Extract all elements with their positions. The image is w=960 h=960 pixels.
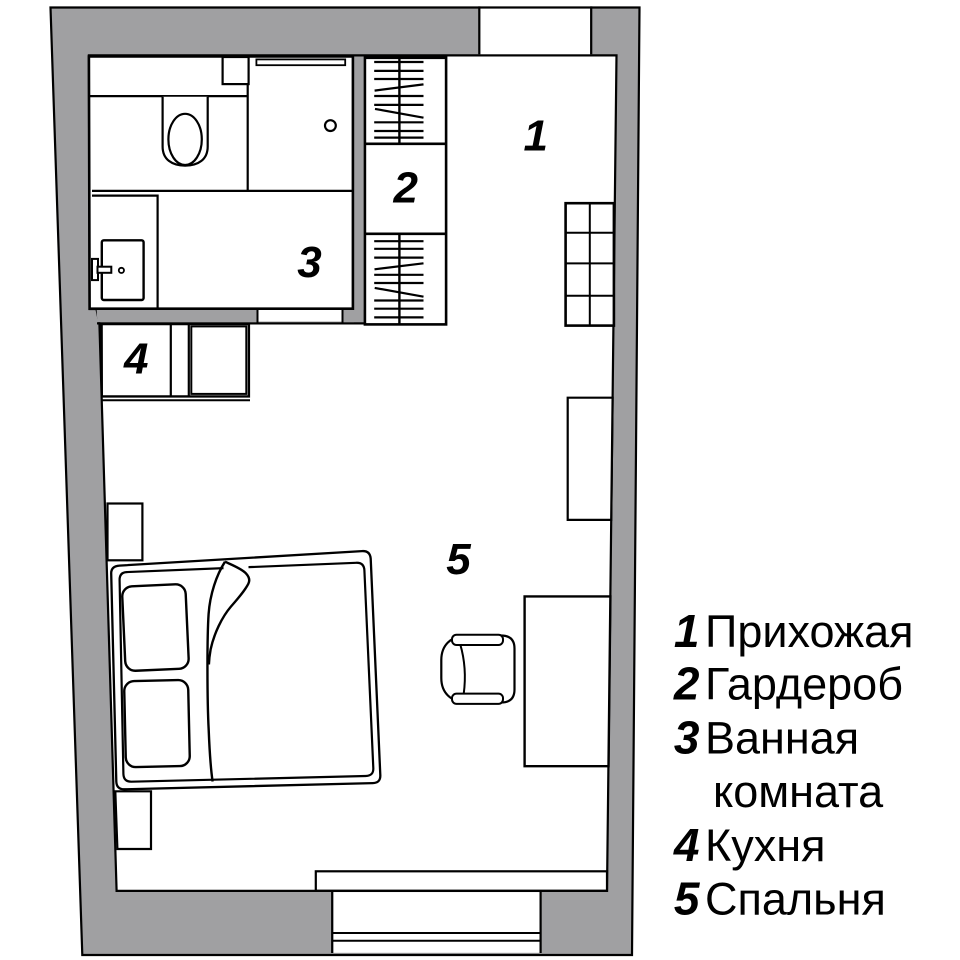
svg-text:2: 2 — [673, 658, 700, 710]
svg-text:4: 4 — [673, 819, 700, 871]
svg-text:Спальня: Спальня — [705, 874, 886, 925]
svg-text:Ванная: Ванная — [705, 713, 859, 764]
svg-text:1: 1 — [524, 112, 548, 161]
svg-text:3: 3 — [297, 238, 321, 287]
svg-text:5: 5 — [446, 535, 471, 584]
svg-text:4: 4 — [123, 335, 148, 384]
svg-text:3: 3 — [674, 712, 700, 764]
svg-text:5: 5 — [674, 873, 701, 925]
svg-text:комната: комната — [713, 766, 884, 817]
svg-text:Кухня: Кухня — [705, 820, 825, 871]
svg-text:Гардероб: Гардероб — [705, 659, 903, 710]
svg-text:2: 2 — [393, 164, 419, 213]
svg-text:1: 1 — [674, 605, 700, 657]
svg-text:Прихожая: Прихожая — [705, 606, 914, 657]
